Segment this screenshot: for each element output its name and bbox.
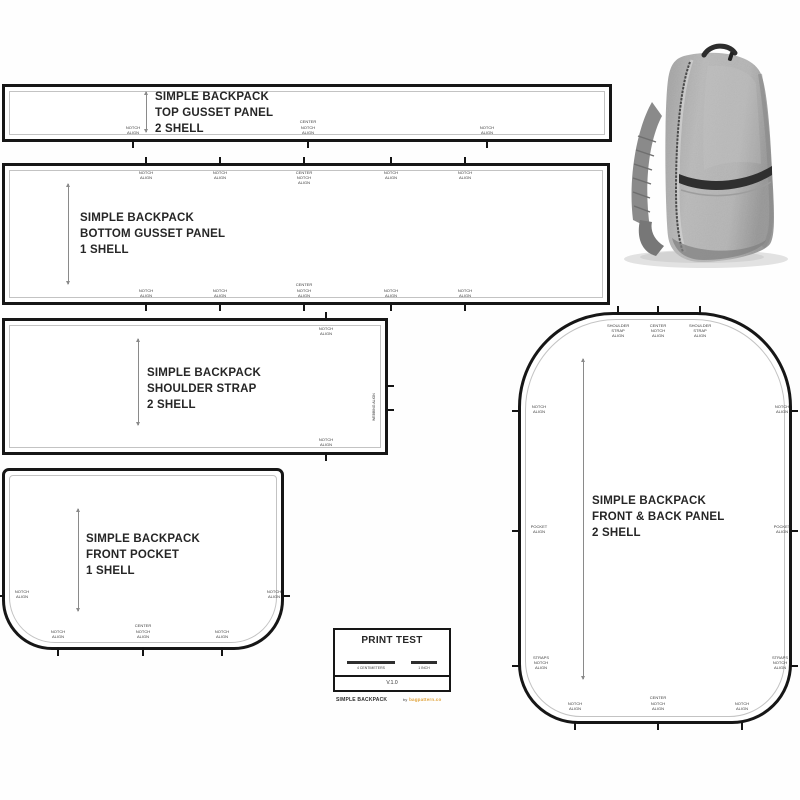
notch-tick xyxy=(325,312,327,321)
notch-tick xyxy=(699,306,701,315)
piece-title-line: SIMPLE BACKPACK xyxy=(155,89,273,105)
piece-front-pocket: SIMPLE BACKPACK FRONT POCKET 1 SHELL NOT… xyxy=(2,468,284,650)
grain-arrow xyxy=(583,359,584,679)
notch-label: NOTCH ALIGN xyxy=(47,629,69,639)
piece-title-line: BOTTOM GUSSET PANEL xyxy=(80,226,225,242)
piece-title: SIMPLE BACKPACK FRONT & BACK PANEL 2 SHE… xyxy=(592,493,724,541)
grain-arrow xyxy=(68,184,69,284)
inch-scale-label: 1 INCH xyxy=(399,666,449,670)
notch-label: NOTCH ALIGN xyxy=(211,629,233,639)
piece-title-line: 1 SHELL xyxy=(80,242,225,258)
notch-label: NOTCH ALIGN xyxy=(315,326,337,336)
notch-tick xyxy=(303,157,305,166)
notch-tick xyxy=(657,306,659,315)
notch-label: NOTCH ALIGN xyxy=(380,170,402,180)
notch-tick xyxy=(617,306,619,315)
grey-backpack-photo xyxy=(612,40,800,270)
notch-label: NOTCH ALIGN xyxy=(122,125,144,135)
notch-label: NOTCH ALIGN xyxy=(135,170,157,180)
piece-title: SIMPLE BACKPACK FRONT POCKET 1 SHELL xyxy=(86,531,200,579)
print-test-title: PRINT TEST xyxy=(335,635,449,646)
notch-tick xyxy=(0,595,5,597)
notch-tick xyxy=(464,302,466,311)
centimeter-scale-label: 4 CENTIMETERS xyxy=(341,666,401,670)
notch-label: STRAPS NOTCH ALIGN xyxy=(769,655,791,671)
notch-tick xyxy=(221,647,223,656)
piece-title-line: 2 SHELL xyxy=(592,525,724,541)
notch-label: SHOULDER STRAP ALIGN xyxy=(607,323,629,339)
notch-label: NOTCH ALIGN xyxy=(11,589,33,599)
notch-tick xyxy=(219,302,221,311)
notch-label: NOTCH ALIGN xyxy=(209,288,231,298)
notch-tick xyxy=(219,157,221,166)
notch-label: NOTCH ALIGN xyxy=(380,288,402,298)
webbing-align-label: WEBBING ALIGN xyxy=(373,381,377,421)
piece-title-line: TOP GUSSET PANEL xyxy=(155,105,273,121)
footer-by-label: by xyxy=(403,697,408,702)
piece-title: SIMPLE BACKPACK SHOULDER STRAP 2 SHELL xyxy=(147,365,261,413)
print-test-box: PRINT TEST 4 CENTIMETERS 1 INCH V.1.0 xyxy=(333,628,451,692)
notch-label: SHOULDER STRAP ALIGN xyxy=(689,323,711,339)
piece-title-line: 1 SHELL xyxy=(86,563,200,579)
notch-tick xyxy=(57,647,59,656)
notch-label: NOTCH ALIGN xyxy=(135,288,157,298)
notch-label: NOTCH ALIGN xyxy=(528,404,550,414)
piece-title-line: 2 SHELL xyxy=(147,397,261,413)
piece-title-line: SIMPLE BACKPACK xyxy=(147,365,261,381)
notch-label: CENTER NOTCH ALIGN xyxy=(297,119,319,135)
notch-label: NOTCH ALIGN xyxy=(731,701,753,711)
piece-title-line: 2 SHELL xyxy=(155,121,273,137)
notch-label: CENTER NOTCH ALIGN xyxy=(293,170,315,186)
backpack-illustration xyxy=(612,40,800,270)
notch-tick xyxy=(145,157,147,166)
notch-tick xyxy=(390,157,392,166)
notch-label: NOTCH ALIGN xyxy=(263,589,285,599)
notch-tick xyxy=(657,721,659,730)
piece-title-line: FRONT POCKET xyxy=(86,547,200,563)
notch-tick xyxy=(512,410,521,412)
piece-front-back-panel: SIMPLE BACKPACK FRONT & BACK PANEL 2 SHE… xyxy=(518,312,792,724)
notch-label: NOTCH ALIGN xyxy=(771,404,793,414)
notch-tick xyxy=(385,385,394,387)
notch-tick xyxy=(307,139,309,148)
grain-arrow xyxy=(138,339,139,425)
notch-tick xyxy=(132,139,134,148)
inch-scale-bar xyxy=(411,661,437,664)
piece-title-line: SIMPLE BACKPACK xyxy=(592,493,724,509)
version-label: V.1.0 xyxy=(335,675,449,690)
piece-title: SIMPLE BACKPACK TOP GUSSET PANEL 2 SHELL xyxy=(155,89,273,137)
piece-title-line: SIMPLE BACKPACK xyxy=(80,210,225,226)
notch-tick xyxy=(390,302,392,311)
piece-title-line: SHOULDER STRAP xyxy=(147,381,261,397)
notch-label: NOTCH ALIGN xyxy=(564,701,586,711)
notch-tick xyxy=(512,665,521,667)
notch-tick xyxy=(464,157,466,166)
notch-label: NOTCH ALIGN xyxy=(315,437,337,447)
piece-top-gusset-panel: SIMPLE BACKPACK TOP GUSSET PANEL 2 SHELL… xyxy=(2,84,612,142)
notch-label: CENTER NOTCH ALIGN xyxy=(293,282,315,298)
sheet-footer: SIMPLE BACKPACK by bagpattern.co xyxy=(336,697,452,703)
piece-title: SIMPLE BACKPACK BOTTOM GUSSET PANEL 1 SH… xyxy=(80,210,225,258)
notch-label: NOTCH ALIGN xyxy=(476,125,498,135)
notch-label: STRAPS NOTCH ALIGN xyxy=(530,655,552,671)
notch-label: CENTER NOTCH ALIGN xyxy=(647,695,669,711)
footer-pattern-name: SIMPLE BACKPACK xyxy=(336,697,387,703)
piece-shoulder-strap: SIMPLE BACKPACK SHOULDER STRAP 2 SHELL N… xyxy=(2,318,388,455)
piece-title-line: SIMPLE BACKPACK xyxy=(86,531,200,547)
notch-label: POCKET ALIGN xyxy=(528,524,550,534)
notch-label: POCKET ALIGN xyxy=(771,524,793,534)
notch-label: CENTER NOTCH ALIGN xyxy=(132,623,154,639)
grain-arrow xyxy=(78,509,79,611)
notch-tick xyxy=(512,530,521,532)
notch-label: NOTCH ALIGN xyxy=(454,288,476,298)
centimeter-scale-bar xyxy=(347,661,395,664)
notch-tick xyxy=(385,409,394,411)
notch-label: CENTER NOTCH ALIGN xyxy=(647,323,669,339)
piece-title-line: FRONT & BACK PANEL xyxy=(592,509,724,525)
piece-bottom-gusset-panel: SIMPLE BACKPACK BOTTOM GUSSET PANEL 1 SH… xyxy=(2,163,610,305)
notch-tick xyxy=(574,721,576,730)
notch-label: NOTCH ALIGN xyxy=(209,170,231,180)
notch-tick xyxy=(325,452,327,461)
notch-tick xyxy=(142,647,144,656)
footer-credit-link: bagpattern.co xyxy=(409,697,441,702)
notch-tick xyxy=(303,302,305,311)
notch-tick xyxy=(486,139,488,148)
notch-label: NOTCH ALIGN xyxy=(454,170,476,180)
notch-tick xyxy=(741,721,743,730)
grain-arrow xyxy=(146,92,147,132)
notch-tick xyxy=(145,302,147,311)
pattern-sheet: SIMPLE BACKPACK TOP GUSSET PANEL 2 SHELL… xyxy=(0,0,800,800)
